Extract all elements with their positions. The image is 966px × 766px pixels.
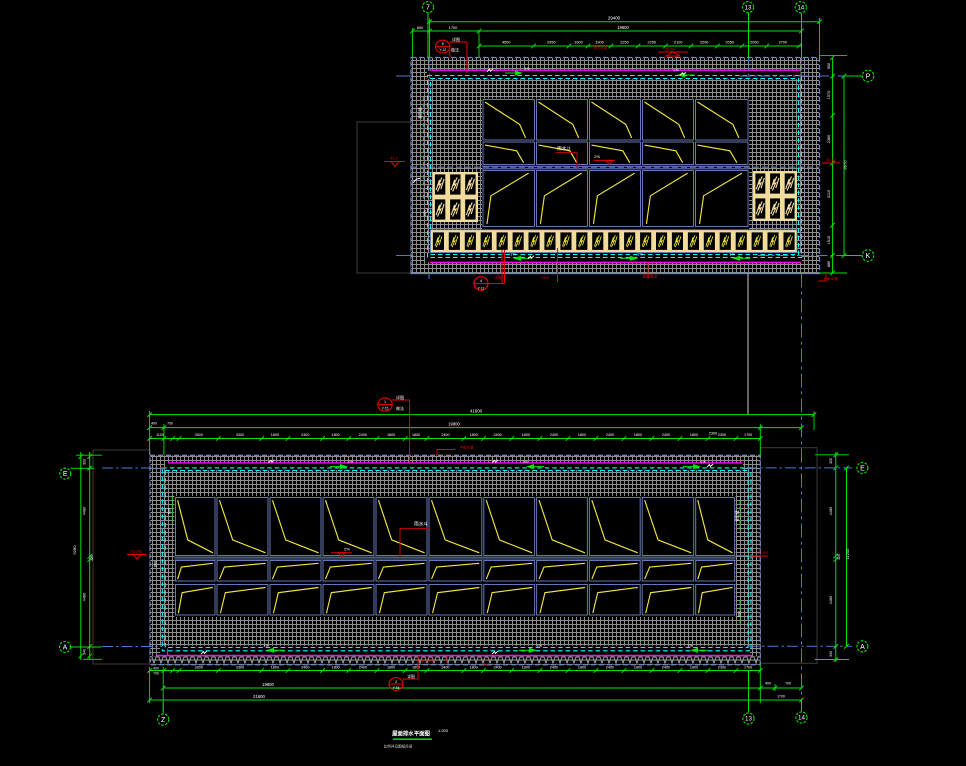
svg-text:1800: 1800 [332,433,340,437]
svg-text:9280: 9280 [72,545,77,555]
svg-text:400: 400 [153,666,159,670]
svg-text:3300: 3300 [195,433,203,437]
svg-text:1700: 1700 [744,433,752,437]
svg-text:55.60: 55.60 [665,47,675,51]
svg-text:2400: 2400 [493,665,501,669]
svg-text:53.10: 53.10 [827,158,836,162]
svg-text:2700: 2700 [779,41,787,45]
svg-text:2400: 2400 [359,665,367,669]
svg-text:1%: 1% [729,252,735,257]
svg-text:3300: 3300 [236,433,244,437]
svg-text:详图: 详图 [396,394,404,400]
svg-text:650: 650 [423,210,427,216]
svg-text:1800: 1800 [634,665,642,669]
svg-text:1%: 1% [536,643,542,648]
svg-text:13: 13 [745,4,752,11]
svg-text:45.2: 45.2 [390,156,397,160]
svg-text:1800: 1800 [690,665,698,669]
svg-text:320: 320 [837,554,841,560]
svg-text:2: 2 [395,680,397,684]
svg-text:2%: 2% [344,547,350,552]
svg-text:1%: 1% [700,459,706,464]
svg-text:14: 14 [798,715,805,722]
svg-text:880: 880 [827,261,831,267]
svg-text:2950: 2950 [547,41,555,45]
svg-text:19800: 19800 [262,682,274,687]
svg-text:4480: 4480 [82,592,87,601]
svg-text:2300: 2300 [709,432,717,436]
svg-text:1800: 1800 [634,433,642,437]
svg-text:1800: 1800 [271,665,279,669]
svg-text:1500: 1500 [541,276,549,280]
svg-text:2300: 2300 [718,433,726,437]
svg-text:1%: 1% [510,252,516,257]
svg-text:2400: 2400 [493,433,501,437]
svg-text:1800: 1800 [412,665,420,669]
svg-text:3300: 3300 [195,665,203,669]
svg-text:做法: 做法 [396,405,404,411]
svg-text:2100: 2100 [674,41,682,45]
svg-text:1%: 1% [524,66,530,71]
svg-text:2400: 2400 [606,665,614,669]
svg-text:1%: 1% [687,643,693,648]
svg-text:2050: 2050 [750,41,758,45]
svg-text:2380: 2380 [827,135,831,143]
svg-text:4500: 4500 [502,41,510,45]
svg-text:1800: 1800 [332,665,340,669]
svg-text:Y-12: Y-12 [439,48,446,52]
svg-text:1%: 1% [347,459,353,464]
svg-text:2200: 2200 [700,41,708,45]
svg-text:1:200: 1:200 [438,728,449,733]
svg-text:2400: 2400 [441,433,449,437]
svg-text:P: P [866,74,871,81]
svg-text:900: 900 [827,63,831,69]
svg-text:A: A [860,644,865,651]
svg-text:19600: 19600 [617,25,629,30]
svg-text:消防水箱: 消防水箱 [593,45,608,50]
svg-text:2400: 2400 [550,433,558,437]
svg-text:600: 600 [167,508,171,514]
svg-text:2400: 2400 [301,433,309,437]
svg-text:1800: 1800 [470,433,478,437]
svg-text:详图: 详图 [452,36,460,42]
svg-text:Y-15: Y-15 [393,686,400,690]
svg-text:4: 4 [480,279,482,283]
svg-text:1100: 1100 [156,433,164,437]
svg-text:4480: 4480 [82,506,87,515]
svg-text:2050: 2050 [725,41,733,45]
svg-text:K: K [866,253,871,260]
svg-text:1800: 1800 [578,433,586,437]
svg-text:雨水斗: 雨水斗 [557,145,571,152]
svg-text:1800: 1800 [578,665,586,669]
svg-text:做法: 做法 [451,47,459,53]
svg-text:320: 320 [829,458,833,464]
svg-text:屋面做法: 屋面做法 [643,274,658,279]
svg-text:1800: 1800 [470,665,478,669]
svg-text:400: 400 [151,422,157,426]
svg-text:41600: 41600 [470,409,483,414]
svg-text:屋面排水平面图: 屋面排水平面图 [392,730,430,738]
svg-text:E: E [63,471,68,478]
svg-text:Y-15: Y-15 [382,407,389,411]
svg-text:7: 7 [426,5,430,12]
svg-text:320: 320 [90,555,94,561]
svg-text:600: 600 [417,25,424,30]
svg-text:3110: 3110 [827,190,831,198]
svg-text:1800: 1800 [387,433,395,437]
svg-text:4480: 4480 [828,595,833,604]
svg-text:2250: 2250 [620,41,628,45]
svg-text:Y-12: Y-12 [478,286,485,290]
svg-text:2400: 2400 [301,665,309,669]
svg-text:变形缝: 变形缝 [418,107,423,119]
svg-text:1510: 1510 [827,236,831,244]
svg-text:1900: 1900 [595,41,603,45]
svg-text:1700: 1700 [449,25,458,30]
svg-text:2400: 2400 [662,665,670,669]
svg-text:2400: 2400 [359,433,367,437]
svg-text:14: 14 [797,4,804,11]
svg-text:变形缝: 变形缝 [735,510,740,522]
svg-text:1700: 1700 [777,695,785,699]
svg-text:4480: 4480 [828,506,833,515]
svg-text:A: A [63,644,68,651]
svg-text:2400: 2400 [662,433,670,437]
svg-text:13: 13 [745,716,752,723]
svg-text:2400: 2400 [550,665,558,669]
svg-text:700: 700 [153,672,159,676]
svg-text:详图: 详图 [407,674,415,679]
svg-text:31.000: 31.000 [756,551,768,555]
svg-text:详图: 详图 [494,275,502,280]
svg-text:1800: 1800 [522,665,530,669]
svg-text:600: 600 [154,561,158,567]
svg-text:3300: 3300 [236,665,244,669]
svg-text:19800: 19800 [448,422,460,427]
svg-text:400: 400 [765,681,771,685]
svg-text:1800: 1800 [690,433,698,437]
svg-text:1700: 1700 [744,665,752,669]
svg-text:1800: 1800 [387,665,395,669]
svg-text:2400: 2400 [606,433,614,437]
svg-text:2%: 2% [594,154,600,159]
svg-text:6: 6 [442,42,444,46]
svg-text:比例详见图纸目录: 比例详见图纸目录 [384,743,413,748]
svg-text:1%: 1% [673,68,679,73]
svg-text:1800: 1800 [522,433,530,437]
svg-text:340: 340 [829,651,833,657]
svg-text:E: E [860,465,865,472]
svg-text:8970: 8970 [843,160,848,170]
svg-text:雨水斗: 雨水斗 [414,521,428,528]
svg-text:1: 1 [384,400,386,404]
svg-text:1970: 1970 [827,91,831,99]
svg-text:R雨水管: R雨水管 [460,445,474,450]
svg-text:1800: 1800 [271,433,279,437]
svg-text:11200: 11200 [845,548,850,560]
svg-text:1%: 1% [637,252,643,257]
svg-text:Z: Z [161,717,166,724]
svg-text:2300: 2300 [718,665,726,669]
svg-text:700: 700 [167,422,173,426]
svg-text:做法详见: 做法详见 [421,658,436,663]
svg-text:1%: 1% [522,459,528,464]
svg-text:1%: 1% [263,643,269,648]
svg-text:29400: 29400 [608,16,621,21]
svg-text:320: 320 [83,459,87,465]
svg-text:700: 700 [785,681,791,685]
svg-text:2400: 2400 [441,665,449,669]
svg-text:340: 340 [83,649,87,655]
svg-text:2250: 2250 [648,41,656,45]
svg-text:1500: 1500 [481,663,489,667]
svg-text:21600: 21600 [253,694,265,699]
svg-text:31.000: 31.000 [130,549,142,553]
svg-text:650: 650 [738,611,742,617]
svg-text:1600: 1600 [574,41,582,45]
svg-text:1800: 1800 [412,433,420,437]
